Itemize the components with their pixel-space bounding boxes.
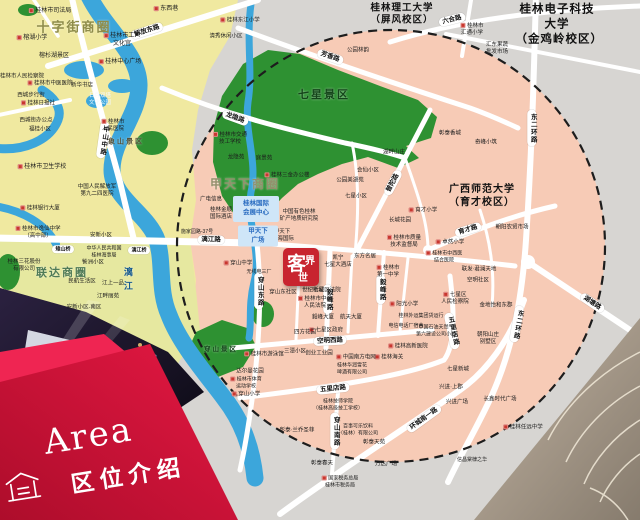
road-label-text: 东二环路 [512,309,524,340]
place-label-text: 阳光小学 [396,301,418,307]
poi-marker-icon [244,351,249,356]
place-label-text: 长鑫时代广场 [483,396,516,402]
place-label-text: 信昌棠棣之华 [457,457,487,463]
place-label: 长鑫时代广场 [483,396,516,403]
place-label: 西城街办公点 [19,117,52,124]
place-label: 桂林市体育 运动学校 [230,377,262,390]
place-label-text: 榕杉湖景区 [39,53,69,59]
road-label-text: 六合路 [442,14,463,26]
road-label-text: 空明西路 [317,336,343,344]
place-label-text: 中国石油天然气 第六建设公司小区 [416,325,456,338]
poi-marker-icon [460,23,465,28]
poi-marker-icon [18,164,23,169]
university-label: 桂林理工大学 （屏风校区） [370,3,433,28]
place-label-text: 国家税务总局 桂林市税务局 [325,476,358,489]
place-label: 桂林市 人民医院 [101,119,124,133]
place-label: 湖畔山庄 [383,149,405,156]
place-label-text: 新华书店 [71,82,93,88]
place-label: 桂林市中级 人民法院 [298,296,332,310]
poi-marker-icon [224,260,229,265]
zone-label-text: 象山景区 [108,138,144,145]
place-label-text: 桂林东江小学 [227,17,260,23]
place-label-text: 桂林任远中学 [510,424,543,430]
poi-marker-icon [20,205,25,210]
poi-marker-icon [15,226,20,231]
place-label-text: 桂林市中西医 结合医院 [432,251,462,264]
road-label: 东二环路 [527,110,536,147]
place-label-text: 创业工业园 [305,350,333,356]
place-label-text: 中国人民解放军 第九二四医院 [78,184,117,197]
place-label: 公园林韵 [347,47,369,54]
place-label: 毅峰大厦 [312,314,334,321]
road-label: 龙隐路 [221,109,249,127]
place-label-text: 彰泰·兰乔圣菲 [280,427,315,433]
place-label-text: 七星区政府 [315,327,343,333]
poi-marker-icon [409,207,414,212]
place-label: 凯宁 七星大酒店 [324,255,352,269]
poi-marker-icon [264,172,269,177]
road-label-text: 环城南一路 [408,406,438,431]
university-label-text: 广西师范大学 （育才校区） [449,184,515,208]
place-label: 桂林三金办公楼 [264,172,309,179]
place-label-text: 桂林三花股份 有限公司 [7,259,40,272]
place-label: 穿山小学 [232,391,261,398]
road-label-text: 龙隐路 [225,111,246,124]
place-label-text: 朝阳农贸市场 [495,224,528,230]
place-label: 中国石油天然气 第六建设公司小区 [416,325,456,338]
place-label: 日月双塔 文化公园 [89,93,111,107]
place-label: 安新小区 [90,232,112,239]
place-label: 达尔曼花园 [236,368,264,375]
poi-marker-icon [21,100,26,105]
building-outline-icon [2,466,44,512]
place-label-text: 訾洲小区 [82,259,104,265]
place-label: 创业工业园 [305,350,333,357]
place-label: 新华书店 [71,82,93,89]
place-label: 七星区法院 [313,287,341,294]
road-label: 雉山桥 [52,245,74,253]
place-label: 中国有色桂林 矿产地质研究院 [280,209,319,223]
place-label: 桂林市逸仙中学 （高中部） [15,226,60,240]
place-label-text: 长城花园 [389,217,411,223]
road-label: 五里店路 [316,383,350,396]
place-label-text: 桂林市司法局 [35,8,71,14]
place-label-text: 施家园路-37号 [181,229,213,235]
place-label-text: 桂林市工人 文化宫 [110,33,140,47]
logo-char-shi: 世 [298,269,308,284]
place-label: 桂林高新医院 [388,343,428,350]
place-label: 桂林市司法局 [29,8,72,16]
place-label: 卓然小学 [436,239,465,246]
place-label-text: 清秀休闲小区 [209,33,242,39]
place-label: 榕湖小学 [17,35,48,43]
road-label: 东二环路 [509,305,525,343]
logo-char-jie: 界 [305,252,315,267]
place-label-text: 广电信息 [200,196,222,202]
place-label-text: 无线电三厂 [246,269,271,275]
zone-label-text: 七星景区 [298,89,350,101]
place-label-text: 公园美湖苑 [336,177,364,183]
place-label: 奇峰小筑 [475,139,497,146]
place-label: 桂林金顺 国际酒店 [210,207,232,221]
place-label: 东西巷 [154,6,179,14]
place-label-text: 中国有色桂林 矿产地质研究院 [280,209,319,222]
place-label: 中国南方电网 [336,354,376,361]
place-label: 彰泰春天 [311,460,333,467]
place-label: 清秀休闲小区 [209,33,242,40]
place-label: 穿山东社区 [269,289,297,296]
place-label-text: 万达广场 [375,461,397,467]
place-label-text: 民航生活区 [68,278,96,284]
road-label: 育才路 [454,222,482,239]
info-box: 甲天下 广场 [238,226,278,247]
map-stage: 十字街商圈甲天下商圈联达商圈七星景区穿山景区象山景区桂林理工大学 （屏风校区）桂… [0,0,640,520]
place-label-text: 会仙小区 [357,167,379,173]
place-label-text: 龙隐苑 [228,154,245,160]
poi-marker-icon [17,35,22,40]
place-label: 彰泰·兰乔圣菲 [280,427,315,434]
road-label-text: 东二环路 [529,113,536,143]
place-label-text: 桂林日报社 [27,100,55,106]
zone-label: 穿山景区 [204,346,238,354]
place-label-text: 东西巷 [160,6,178,12]
place-label-text: 桂林三金办公楼 [271,172,310,178]
road-label-text: 漓江路 [201,236,221,243]
poi-marker-icon [230,377,235,382]
place-label: 朝阳山庄 别墅区 [477,332,499,346]
place-label-text: 七星新城 [447,366,469,372]
place-label-text: 桂林市游泳馆 [251,351,284,357]
place-label: 阳光小学 [390,301,419,308]
place-label: 桂林市卫生学校 [18,164,67,172]
place-label-text: 桂林华润雪花 啤酒有限公司 [337,363,367,376]
place-label: 桂林外运集团货运行 [398,313,443,320]
place-label-text: 桂林市体育 运动学校 [236,377,262,390]
road-label-text: 漓江桥 [131,247,146,253]
place-label-text: 达尔曼花园 [236,368,264,374]
place-label-text: 桂林市中医医院 [34,80,73,86]
zone-label-text: 联达商圈 [36,267,88,279]
place-label-text: 日月双塔 文化公园 [89,93,111,106]
place-label: 穿山中学 [224,260,253,267]
university-label-text: 桂林理工大学 （屏风校区） [370,3,433,26]
zone-label-text: 穿山景区 [204,346,238,353]
place-label: 会仙小区 [357,167,379,174]
road-label: 空明西路 [313,335,346,346]
zone-label: 七星景区 [298,88,350,102]
place-label-text: 联发·君澜天地 [462,266,497,272]
place-label-text: 汇东果蔬 批发市场 [486,42,508,55]
poi-marker-icon [29,8,34,13]
road-label-text: 雉山桥 [55,246,70,252]
place-label-text: 桂林市质量 技术监督局 [390,235,421,248]
place-label-text: 卓然小学 [442,239,464,245]
place-label-text: 航天大厦 [340,314,362,320]
place-label: 育才小学 [409,207,438,214]
poi-marker-icon [101,119,106,124]
place-label-text: 桂林市交通 技工学校 [219,132,247,145]
place-label: 汇东果蔬 批发市场 [486,42,508,56]
place-label: 空明社区 [467,277,489,284]
place-label-text: 穿山小学 [238,391,260,397]
place-label: 桂林华润雪花 啤酒有限公司 [337,363,367,376]
university-label: 桂林电子科技大学 （金鸡岭校区） [516,3,599,48]
place-label: 桂林市工人 文化宫 [104,33,141,49]
place-label: 无线电三厂 [246,269,271,276]
place-label: 四方花园 [294,329,316,336]
place-label-text: 百事可乐饮料 （桂林）有限公司 [338,424,378,437]
river-label: 漓江 [121,267,133,295]
place-label-text: 凯宁 七星大酒店 [324,255,352,268]
place-label: 金地怡和东郡 [479,302,512,309]
info-box-text: 桂林国际 会展中心 [243,200,269,218]
place-label-text: 桂林市逸仙中学 （高中部） [22,226,61,239]
place-label-text: 彰泰香城 [439,130,461,136]
place-label-text: 桂林市中级 人民法院 [304,296,332,309]
place-label-text: 湖畔山庄 [383,149,405,155]
place-label: 彰泰香城 [439,130,461,137]
place-label: 万达广场 [375,461,397,468]
project-logo: 客 界 世 [283,248,319,286]
poi-marker-icon [220,17,225,22]
place-label-text: 安新小区-南区 [67,304,102,310]
poi-marker-icon [443,292,448,297]
road-label: 穿山东路 [254,273,263,310]
place-label: 桂林市质量 技术监督局 [387,235,421,249]
place-label: 中华人民共和国 桂林海事局 [86,246,121,259]
place-label: 航天大厦 [340,314,362,321]
zone-label: 十字街商圈 [36,20,111,37]
place-label-text: 空明社区 [467,277,489,283]
place-label: 彰泰天苑 [363,439,385,446]
river-label-text: 漓江 [123,267,133,295]
university-label: 广西师范大学 （育才校区） [449,183,515,209]
road-label-text: 五里店路 [320,383,347,393]
poi-marker-icon [298,296,303,301]
zone-label: 象山景区 [108,137,144,146]
place-label: 联发·君澜天地 [462,266,497,273]
poi-marker-icon [390,301,395,306]
place-label-text: 西城步行街 [17,92,45,98]
place-label: 长城花园 [389,217,411,224]
place-label: 百事可乐饮料 （桂林）有限公司 [338,424,378,437]
poi-marker-icon [213,132,218,137]
poi-marker-icon [376,265,381,270]
poi-marker-icon [104,33,109,38]
info-box-text: 甲天下 广场 [248,227,268,245]
place-label-text: 桂林海关 [381,354,403,360]
place-label: 桂林市游泳馆 [244,351,284,358]
place-label-text: 桂林银行大厦 [27,205,60,211]
place-label: 安新小区-南区 [67,304,102,311]
place-label-text: 中国南方电网 [343,354,376,360]
place-label: 东方名居 [354,253,376,260]
road-label-text: 芳香路 [320,50,341,63]
zone-label-text: 十字街商圈 [36,20,111,35]
place-label-text: 公园林韵 [347,47,369,53]
place-label: 庭景苑 [256,155,273,162]
place-label: 榕杉湖景区 [39,53,69,61]
place-label-text: 兴进·上郡 [439,384,463,390]
place-label: 广电信息 [200,196,222,203]
place-label-text: 福桂小区 [29,126,51,132]
place-label-text: 安新小区 [90,232,112,238]
place-label: 桂林市中西医 结合医院 [426,251,463,264]
place-label: 三潭小区 [284,348,306,355]
place-label-text: 榕湖小学 [23,35,47,41]
road-label-text: 毅峰路 [378,278,385,301]
place-label: 福桂小区 [29,126,51,133]
place-label-text: 桂林高新医院 [395,343,428,349]
place-label: 桂林中心广场 [99,59,142,67]
road-label: 漓江桥 [128,246,150,254]
place-label: 朝阳农贸市场 [495,224,528,231]
place-label-text: 四方花园 [294,329,316,335]
place-label: 桂林日报社 [21,100,55,107]
place-label: 中国人民解放军 第九二四医院 [78,184,117,198]
poi-marker-icon [154,6,159,11]
poi-marker-icon [27,80,32,85]
road-label: 漓江路 [198,235,225,245]
place-label-text: 彰泰天苑 [363,439,385,445]
place-label: 施家园路-37号 [181,229,213,236]
place-label-text: 金地怡和东郡 [479,302,512,308]
poi-marker-icon [322,476,327,481]
place-label-text: 中华人民共和国 桂林海事局 [86,246,121,259]
place-label: 桂林市 第一中学 [376,265,399,279]
banner-title-en: Area [41,409,135,462]
place-label: 桂林海关 [375,354,404,361]
place-label-text: 穿山中学 [230,260,252,266]
place-label-text: 彰泰春天 [311,460,333,466]
poi-marker-icon [99,59,104,64]
place-label-text: 朝阳山庄 别墅区 [477,332,499,345]
place-label-text: 桂林市人民检察院 [0,73,44,79]
place-label-text: 毅峰大厦 [312,314,334,320]
place-label-text: 庭景苑 [256,155,273,161]
place-label-text: 东方名居 [354,253,376,259]
road-label: 芳香路 [316,48,344,66]
road-label: 湖塘路 [578,292,605,315]
place-label: 七星区 人民检察院 [441,292,469,306]
place-label: 桂林任远中学 [503,424,543,431]
poi-marker-icon [436,239,441,244]
place-label: 信昌棠棣之华 [457,457,487,464]
road-label-text: 育才路 [457,223,478,235]
poi-marker-icon [388,343,393,348]
place-label-text: 江畔丽苑 [97,293,119,299]
university-label-text: 桂林电子科技大学 （金鸡岭校区） [516,4,604,46]
place-label-text: 三潭小区 [284,348,306,354]
place-label: 江畔丽苑 [97,293,119,300]
poi-marker-icon [336,354,341,359]
place-label-text: 桂林外运集团货运行 [398,313,443,319]
place-label: 公园美湖苑 [336,177,364,184]
info-box: 桂林国际 会展中心 [233,196,279,222]
road-label-text: 普陀路 [385,172,400,193]
road-label: 环城南一路 [405,404,443,435]
place-label: 桂林市中医医院 [27,80,72,87]
place-label: 桂林银行大厦 [20,205,60,212]
place-label: 訾洲小区 [82,259,104,266]
road-label: 普陀路 [383,169,404,197]
place-label-text: 桂林技师学院 （桂林高级技工学校） [313,399,363,412]
place-label-text: 兴进广场 [446,399,468,405]
place-label-text: 桂林金顺 国际酒店 [210,207,232,220]
place-label: 兴进广场 [446,399,468,406]
place-label-text: 桂林市卫生学校 [24,164,66,170]
poi-marker-icon [387,235,392,240]
place-label: 兴进·上郡 [439,384,463,391]
place-label: 桂林市交通 技工学校 [213,132,247,146]
place-label-text: 穿山东社区 [269,289,297,295]
place-label-text: 奇峰小筑 [475,139,497,145]
place-label: 桂林市 汇通小学 [460,23,483,37]
place-label-text: 桂林中心广场 [105,59,141,65]
place-label: 国家税务总局 桂林市税务局 [322,476,359,489]
road-label-text: 穿山东路 [256,276,263,306]
poi-marker-icon [503,424,508,429]
place-label-text: 西城街办公点 [19,117,52,123]
road-label-text: 湖塘路 [582,294,602,311]
poi-marker-icon [426,251,431,256]
place-label: 西城步行街 [17,92,45,99]
place-label-text: 育才小学 [415,207,437,213]
place-label: 龙隐苑 [228,154,245,161]
place-label: 七星小区 [345,193,367,200]
place-label: 民航生活区 [68,278,96,285]
place-label-text: 七星区法院 [313,287,341,293]
place-label: 桂林三花股份 有限公司 [7,259,40,273]
place-label: 七星新城 [447,366,469,373]
place-label: 桂林技师学院 （桂林高级技工学校） [313,399,363,412]
place-label-text: 七星小区 [345,193,367,199]
place-label: 桂林东江小学 [220,17,260,24]
